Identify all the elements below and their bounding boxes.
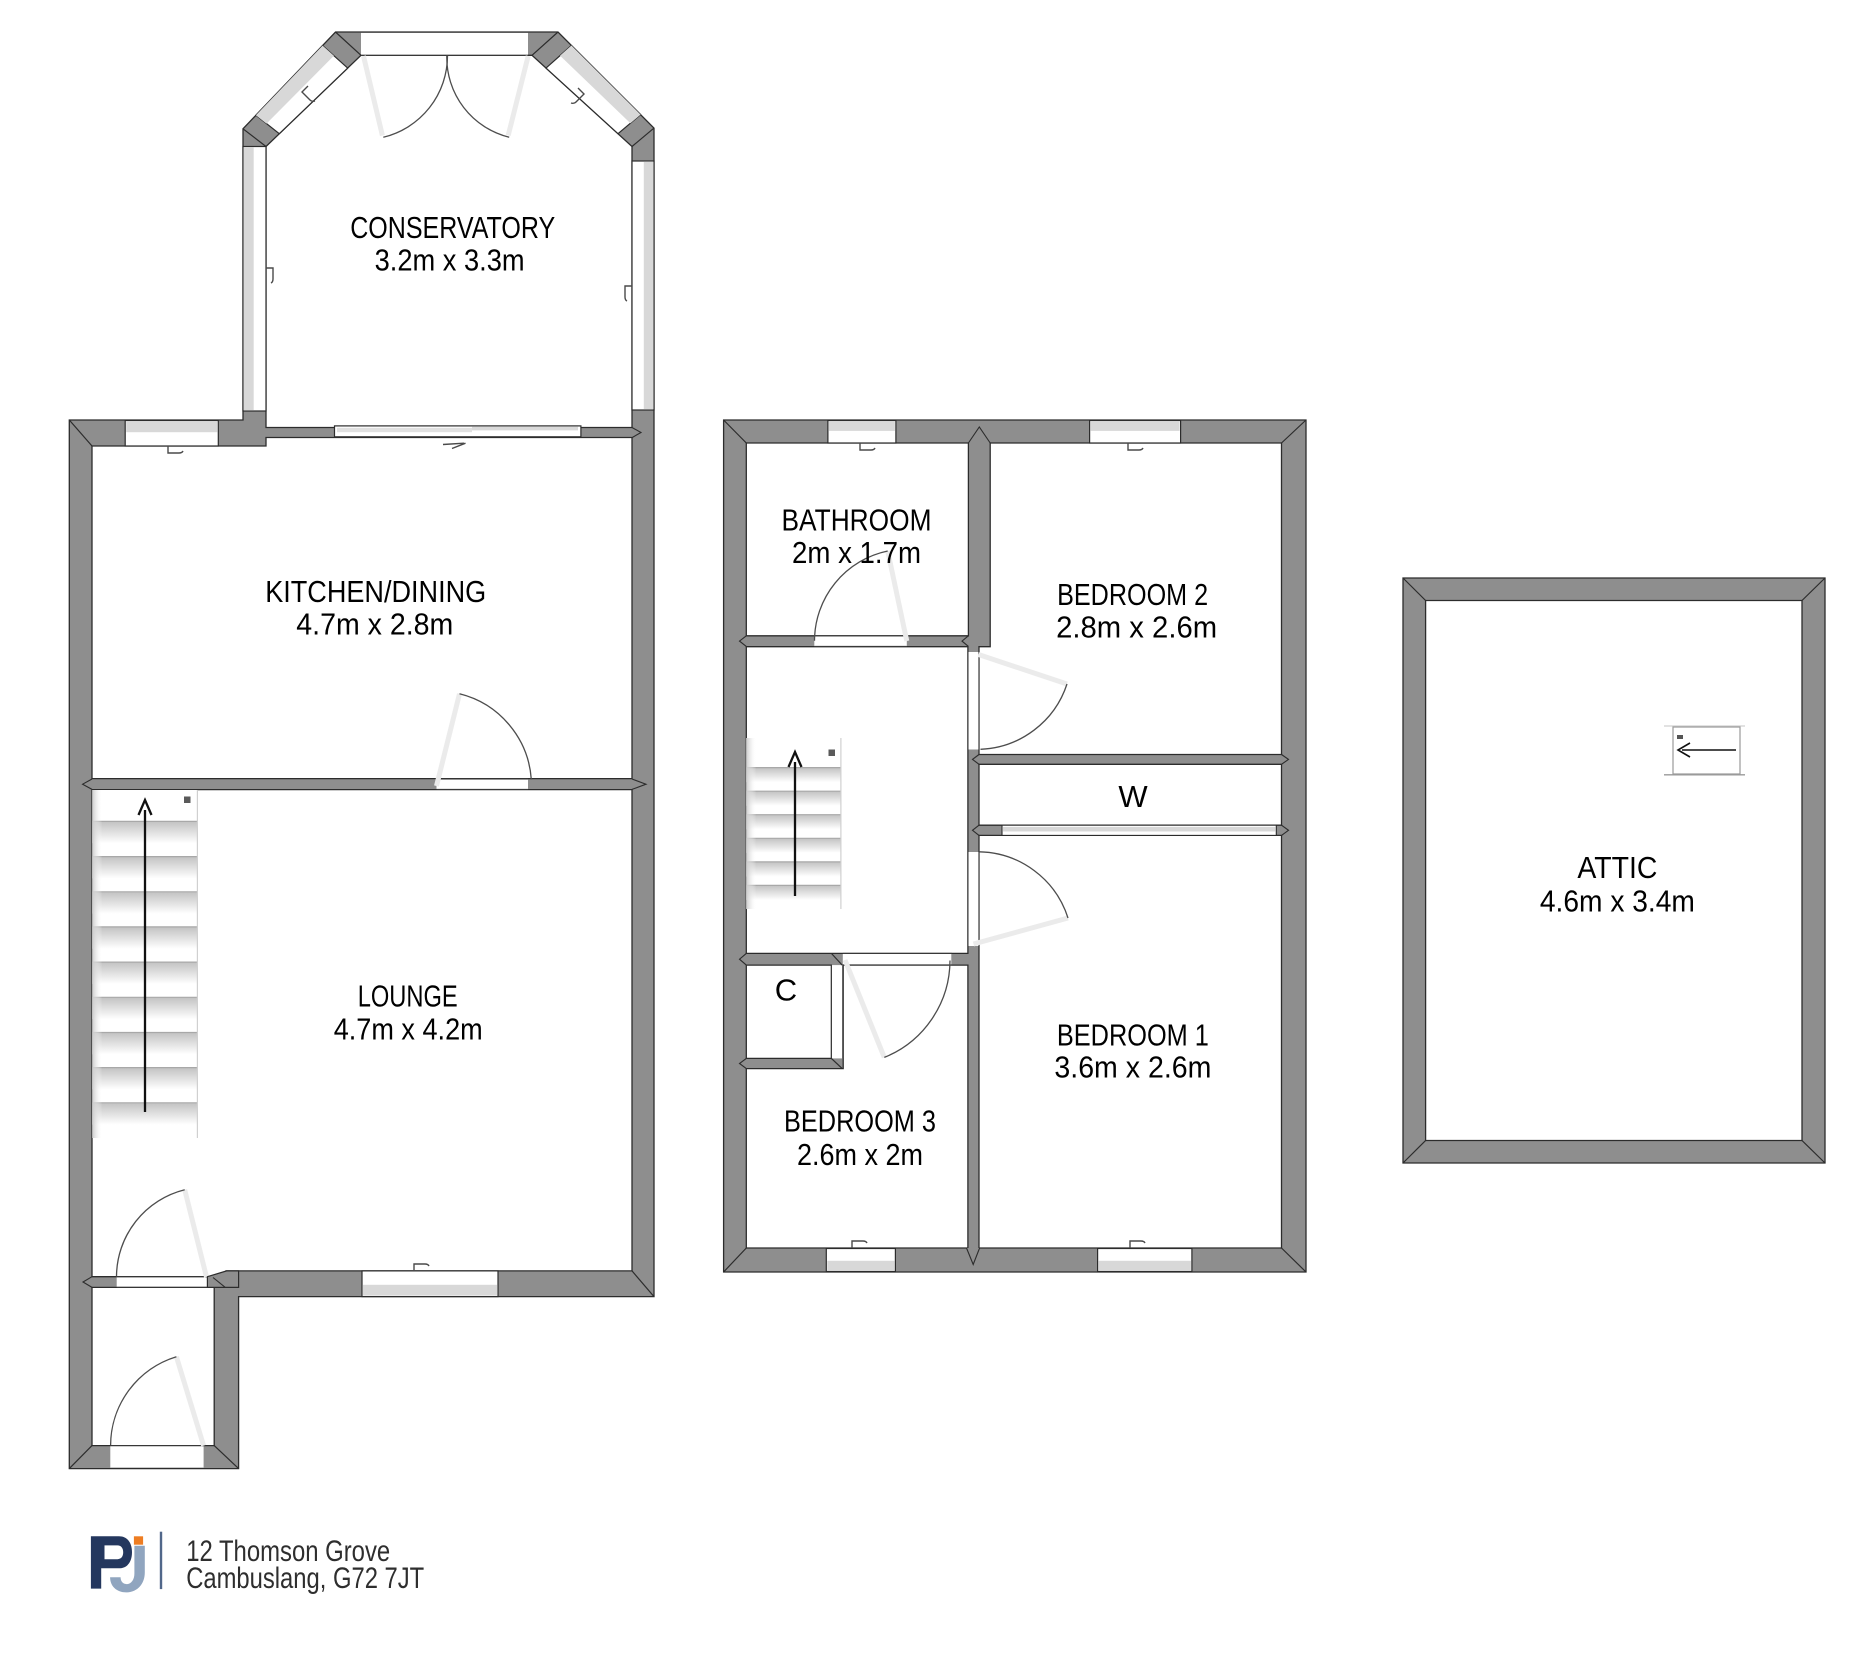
svg-text:C: C	[775, 973, 797, 1008]
svg-text:LOUNGE: LOUNGE	[358, 978, 458, 1013]
svg-text:BATHROOM: BATHROOM	[782, 503, 932, 538]
svg-text:W: W	[1118, 779, 1148, 814]
svg-text:BEDROOM 2: BEDROOM 2	[1057, 577, 1208, 612]
svg-text:2m x 1.7m: 2m x 1.7m	[792, 535, 921, 570]
svg-text:2.6m x 2m: 2.6m x 2m	[797, 1137, 923, 1172]
svg-text:BEDROOM 1: BEDROOM 1	[1057, 1018, 1209, 1053]
svg-text:ATTIC: ATTIC	[1577, 850, 1657, 885]
svg-text:4.7m x 2.8m: 4.7m x 2.8m	[296, 606, 453, 641]
svg-text:3.2m x 3.3m: 3.2m x 3.3m	[375, 243, 525, 278]
svg-text:4.7m x 4.2m: 4.7m x 4.2m	[334, 1012, 483, 1047]
svg-text:KITCHEN/DINING: KITCHEN/DINING	[265, 574, 486, 609]
svg-text:Cambuslang, G72 7JT: Cambuslang, G72 7JT	[186, 1562, 424, 1595]
svg-text:CONSERVATORY: CONSERVATORY	[350, 210, 555, 245]
svg-text:BEDROOM 3: BEDROOM 3	[784, 1103, 936, 1138]
svg-text:3.6m x 2.6m: 3.6m x 2.6m	[1054, 1050, 1211, 1085]
svg-text:2.8m x 2.6m: 2.8m x 2.6m	[1056, 609, 1217, 644]
svg-text:4.6m x 3.4m: 4.6m x 3.4m	[1540, 883, 1695, 918]
